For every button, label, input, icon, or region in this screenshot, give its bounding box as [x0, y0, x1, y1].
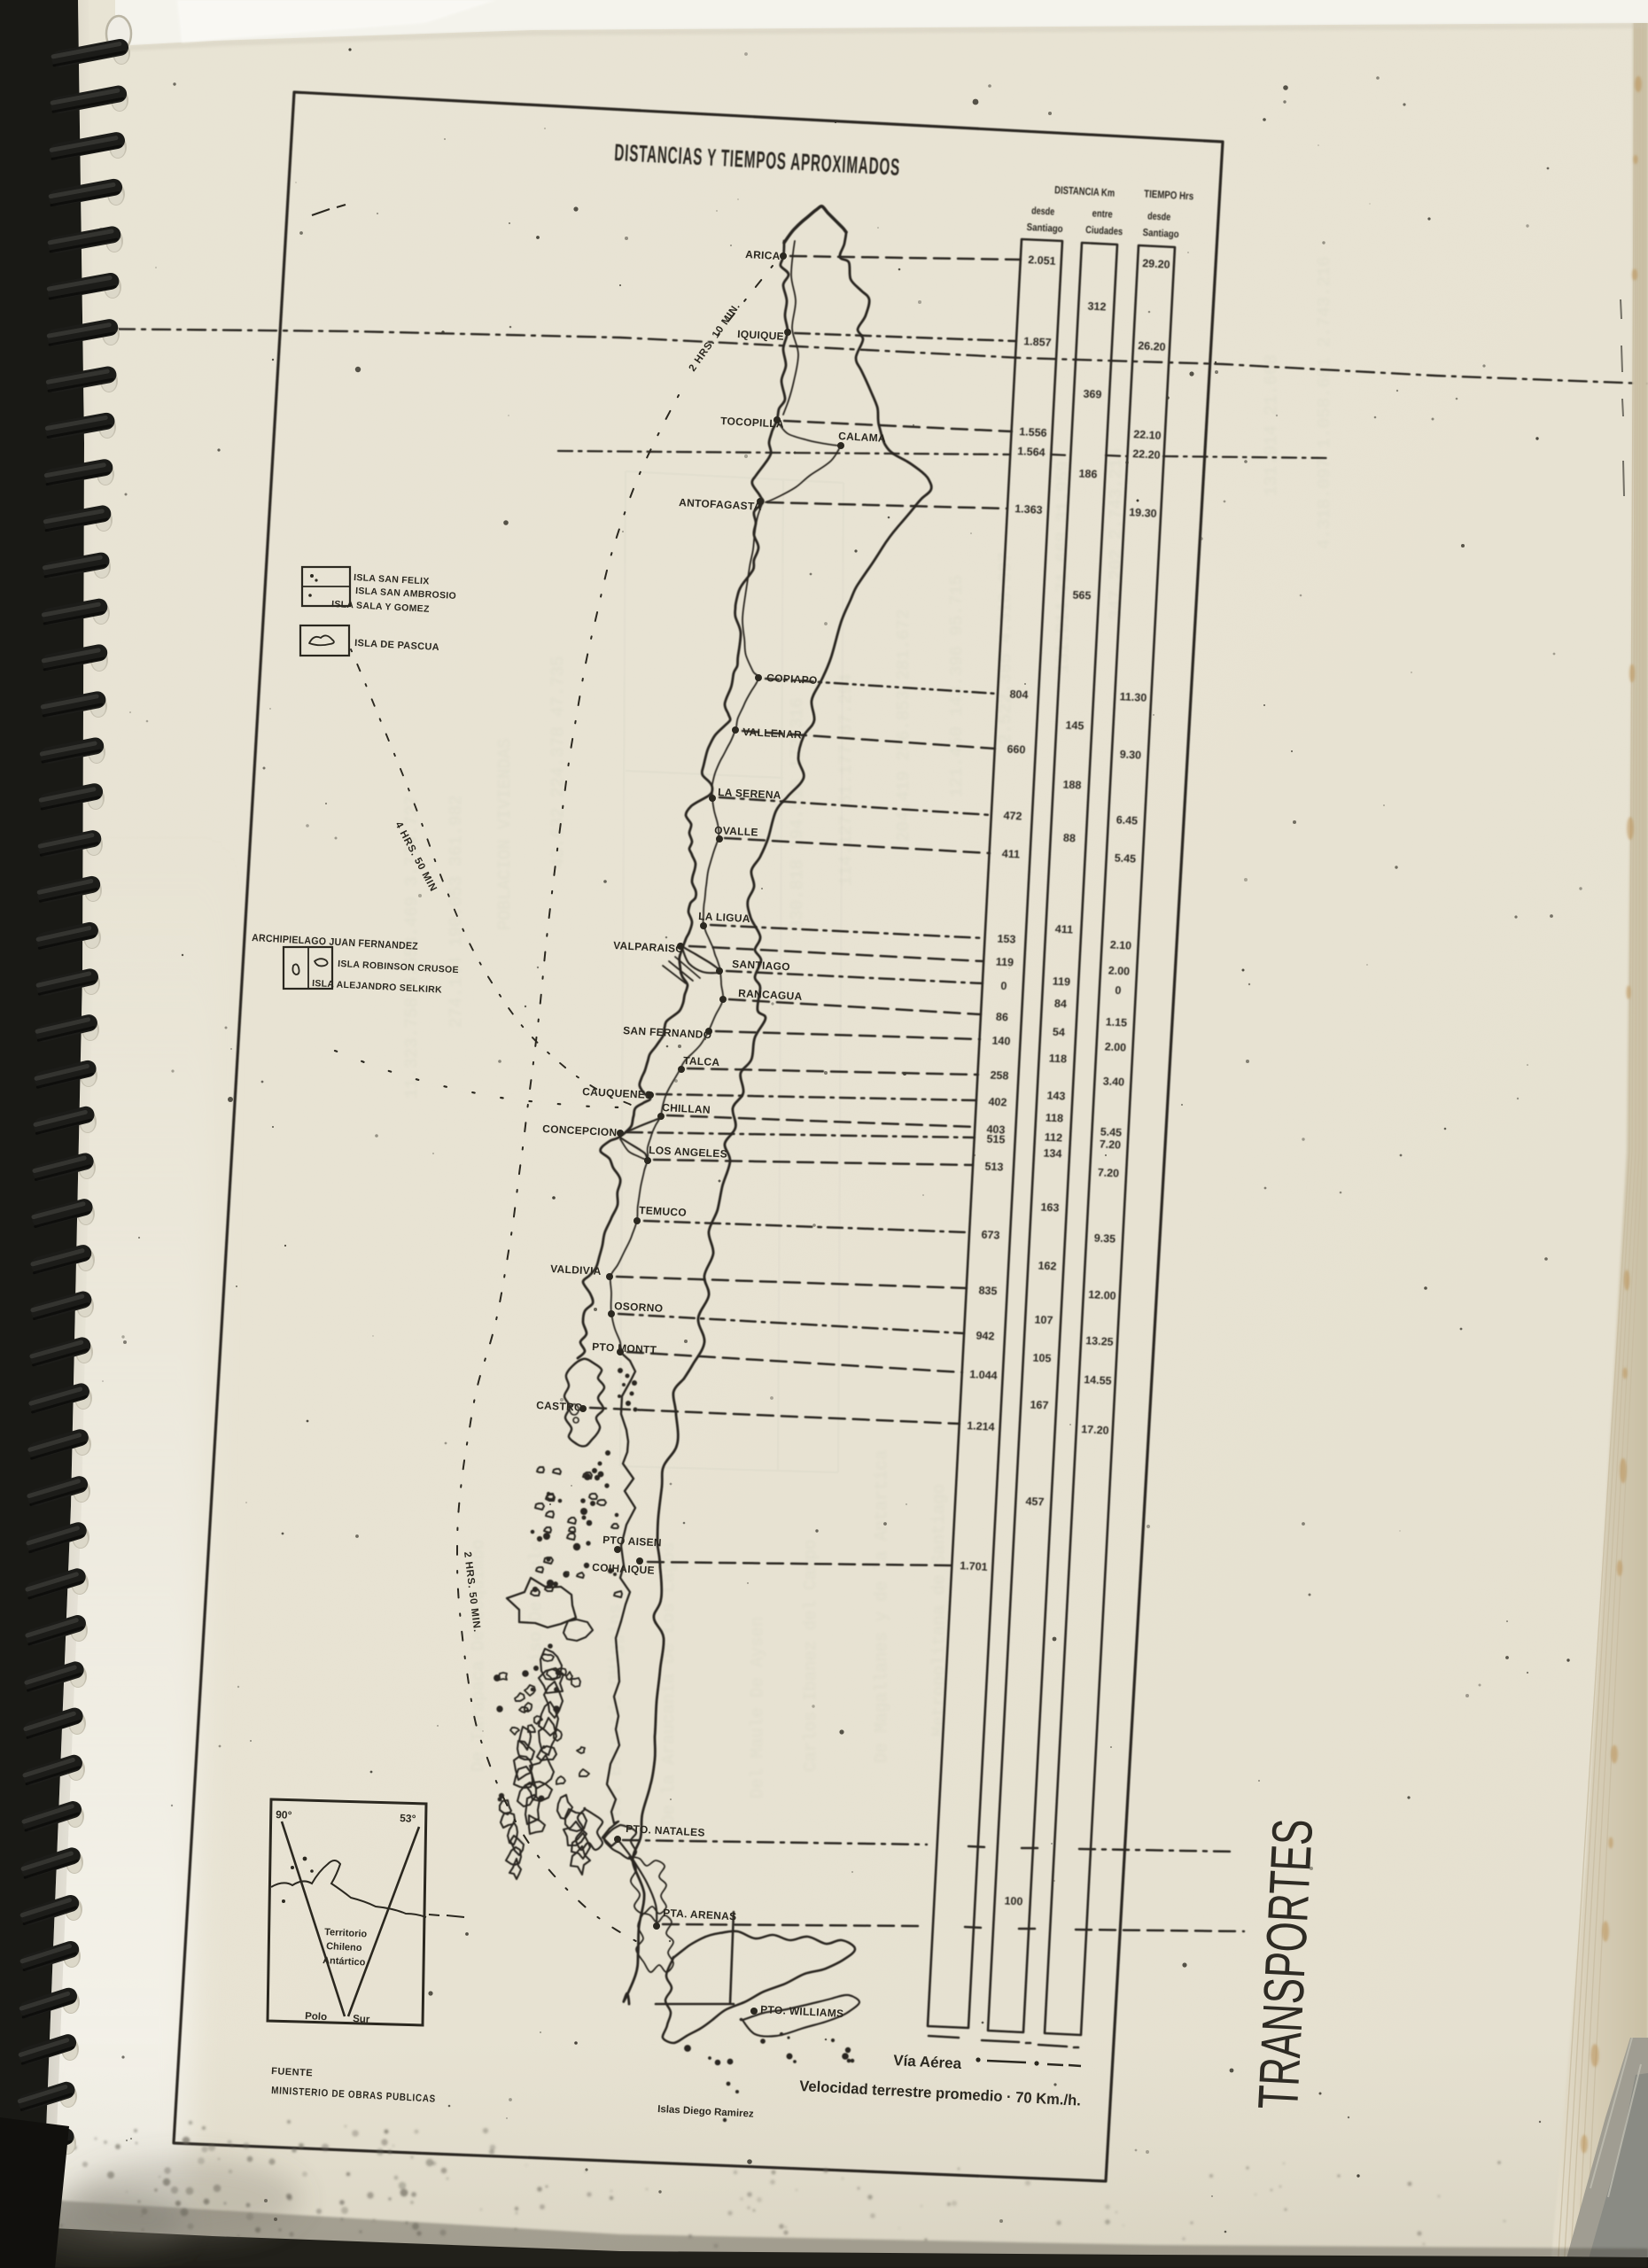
svg-text:312: 312 [1087, 299, 1107, 313]
svg-text:2.522.385 4.318.097: 2.522.385 4.318.097 [996, 552, 1015, 744]
svg-text:12.00: 12.00 [1088, 1288, 1116, 1302]
svg-text:1.214: 1.214 [967, 1419, 995, 1433]
svg-text:7.20: 7.20 [1097, 1166, 1119, 1179]
svg-text:942: 942 [976, 1329, 995, 1342]
svg-text:188: 188 [1062, 778, 1082, 791]
svg-text:1.556: 1.556 [1019, 425, 1047, 439]
svg-text:145: 145 [1065, 718, 1084, 732]
svg-text:515: 515 [986, 1132, 1006, 1146]
svg-text:OVALLE: OVALLE [714, 824, 758, 839]
svg-text:TALCA: TALCA [683, 1054, 720, 1068]
svg-text:Carlos Ibanez del Campo: Carlos Ibanez del Campo [801, 1540, 820, 1772]
svg-text:402: 402 [988, 1095, 1007, 1108]
svg-text:Ciudades: Ciudades [1085, 225, 1123, 237]
svg-text:114.127 51.177 67.294: 114.127 51.177 67.294 [836, 674, 856, 886]
svg-text:673: 673 [981, 1228, 1000, 1241]
svg-text:FUENTE: FUENTE [271, 2066, 314, 2078]
svg-text:TEMUCO: TEMUCO [639, 1204, 687, 1219]
svg-text:153: 153 [997, 932, 1016, 945]
svg-text:5.45: 5.45 [1114, 851, 1136, 865]
svg-text:7.20: 7.20 [1099, 1138, 1121, 1151]
svg-text:131.914 71.668 31.959: 131.914 71.668 31.959 [1053, 462, 1073, 673]
svg-text:9.35: 9.35 [1093, 1231, 1116, 1245]
svg-text:Antártico: Antártico [323, 1955, 366, 1969]
svg-text:2.00: 2.00 [1104, 1040, 1126, 1053]
svg-text:19.30: 19.30 [1129, 506, 1157, 520]
svg-text:90°: 90° [276, 1808, 292, 1821]
svg-text:140: 140 [991, 1034, 1011, 1047]
svg-text:OSORNO: OSORNO [614, 1300, 664, 1315]
svg-text:Sur: Sur [353, 2014, 370, 2025]
svg-text:3.40: 3.40 [1102, 1075, 1124, 1088]
svg-text:43.632 224.378 47.735: 43.632 224.378 47.735 [548, 656, 568, 868]
svg-text:143: 143 [1046, 1089, 1066, 1102]
svg-text:4.318.097 1.058.681 2.743.21: 4.318.097 1.058.681 2.743.216 [1315, 256, 1334, 549]
svg-text:0: 0 [1115, 984, 1122, 997]
svg-text:457: 457 [1025, 1495, 1045, 1508]
svg-text:14.55: 14.55 [1084, 1373, 1112, 1387]
svg-text:1.15: 1.15 [1105, 1015, 1127, 1029]
svg-text:118: 118 [1049, 1052, 1068, 1065]
svg-text:112: 112 [1045, 1130, 1063, 1144]
svg-text:119: 119 [996, 955, 1014, 968]
svg-text:29.20: 29.20 [1142, 257, 1170, 271]
svg-text:84: 84 [1054, 998, 1068, 1011]
svg-text:121.450 143.396 95.715: 121.450 143.396 95.715 [947, 575, 967, 797]
svg-text:Del Maule De Aysen: Del Maule De Aysen [748, 1617, 767, 1798]
svg-text:TIEMPO Hrs: TIEMPO Hrs [1144, 188, 1194, 203]
svg-text:369: 369 [1083, 387, 1102, 400]
svg-text:Polo: Polo [305, 2011, 328, 2023]
svg-text:6.45: 6.45 [1116, 813, 1138, 827]
svg-text:162: 162 [1038, 1259, 1057, 1272]
svg-text:Vía Aérea: Vía Aérea [893, 2052, 962, 2072]
svg-text:CHILLAN: CHILLAN [662, 1101, 711, 1116]
svg-text:CASTRO: CASTRO [536, 1399, 583, 1414]
svg-text:26.20: 26.20 [1138, 339, 1166, 353]
svg-text:565: 565 [1072, 588, 1092, 602]
svg-text:835: 835 [978, 1284, 998, 1297]
svg-text:804: 804 [1009, 687, 1029, 701]
svg-text:Territorio: Territorio [324, 1927, 368, 1940]
svg-text:274.144 190.053 361.982: 274.144 190.053 361.982 [447, 796, 466, 1028]
svg-text:22.20: 22.20 [1132, 447, 1161, 462]
svg-text:POBLACION VIVIENDAS: POBLACION VIVIENDAS [495, 738, 515, 930]
svg-text:2.00: 2.00 [1108, 964, 1130, 977]
svg-text:131.914 21.668: 131.914 21.668 [1262, 354, 1281, 496]
svg-text:472: 472 [1003, 809, 1022, 822]
svg-text:1.857: 1.857 [1023, 335, 1052, 349]
svg-text:Chileno: Chileno [326, 1941, 362, 1953]
svg-text:163: 163 [1040, 1200, 1060, 1214]
svg-text:5.45: 5.45 [1100, 1125, 1122, 1138]
svg-text:107: 107 [1034, 1313, 1053, 1326]
svg-text:86: 86 [996, 1011, 1009, 1024]
svg-text:660: 660 [1007, 742, 1026, 756]
svg-text:ARICA: ARICA [745, 248, 781, 262]
svg-text:17.20: 17.20 [1081, 1423, 1109, 1437]
svg-text:0: 0 [1000, 980, 1007, 992]
svg-text:desde: desde [1031, 206, 1055, 217]
svg-text:258: 258 [990, 1068, 1009, 1082]
svg-text:CALAMA: CALAMA [838, 430, 886, 445]
svg-text:22.10: 22.10 [1133, 428, 1162, 442]
svg-text:105: 105 [1032, 1351, 1052, 1364]
svg-text:1.044: 1.044 [969, 1368, 998, 1382]
svg-text:119: 119 [1053, 975, 1071, 988]
svg-text:134: 134 [1043, 1146, 1062, 1160]
svg-text:IQUIQUE: IQUIQUE [737, 328, 784, 343]
svg-text:411: 411 [1055, 922, 1074, 936]
svg-text:411: 411 [1002, 847, 1021, 860]
svg-text:186: 186 [1078, 467, 1098, 480]
svg-text:2.10: 2.10 [1109, 938, 1131, 951]
svg-text:53°: 53° [400, 1812, 416, 1825]
svg-text:2.051: 2.051 [1028, 253, 1056, 268]
svg-text:1.564: 1.564 [1017, 445, 1046, 459]
svg-text:513: 513 [984, 1160, 1004, 1173]
svg-text:Santiago: Santiago [1142, 228, 1179, 240]
svg-text:54: 54 [1053, 1026, 1066, 1039]
svg-text:11.30: 11.30 [1119, 690, 1147, 704]
svg-text:100: 100 [1004, 1894, 1023, 1907]
svg-text:204.419 256.853 281.672: 204.419 256.853 281.672 [894, 610, 913, 842]
svg-text:1.701: 1.701 [960, 1559, 988, 1573]
svg-text:118: 118 [1046, 1111, 1064, 1124]
svg-text:desde: desde [1147, 211, 1171, 222]
svg-text:13.25: 13.25 [1085, 1334, 1114, 1348]
svg-text:88: 88 [1063, 832, 1077, 845]
svg-text:De Magallanes y de la Antartic: De Magallanes y de la Antartica [872, 1450, 891, 1763]
svg-text:167: 167 [1030, 1398, 1049, 1411]
svg-text:9.30: 9.30 [1119, 748, 1141, 761]
svg-text:1.363: 1.363 [1014, 502, 1043, 517]
svg-text:entre: entre [1092, 208, 1113, 220]
svg-text:Santiago: Santiago [1026, 222, 1063, 235]
